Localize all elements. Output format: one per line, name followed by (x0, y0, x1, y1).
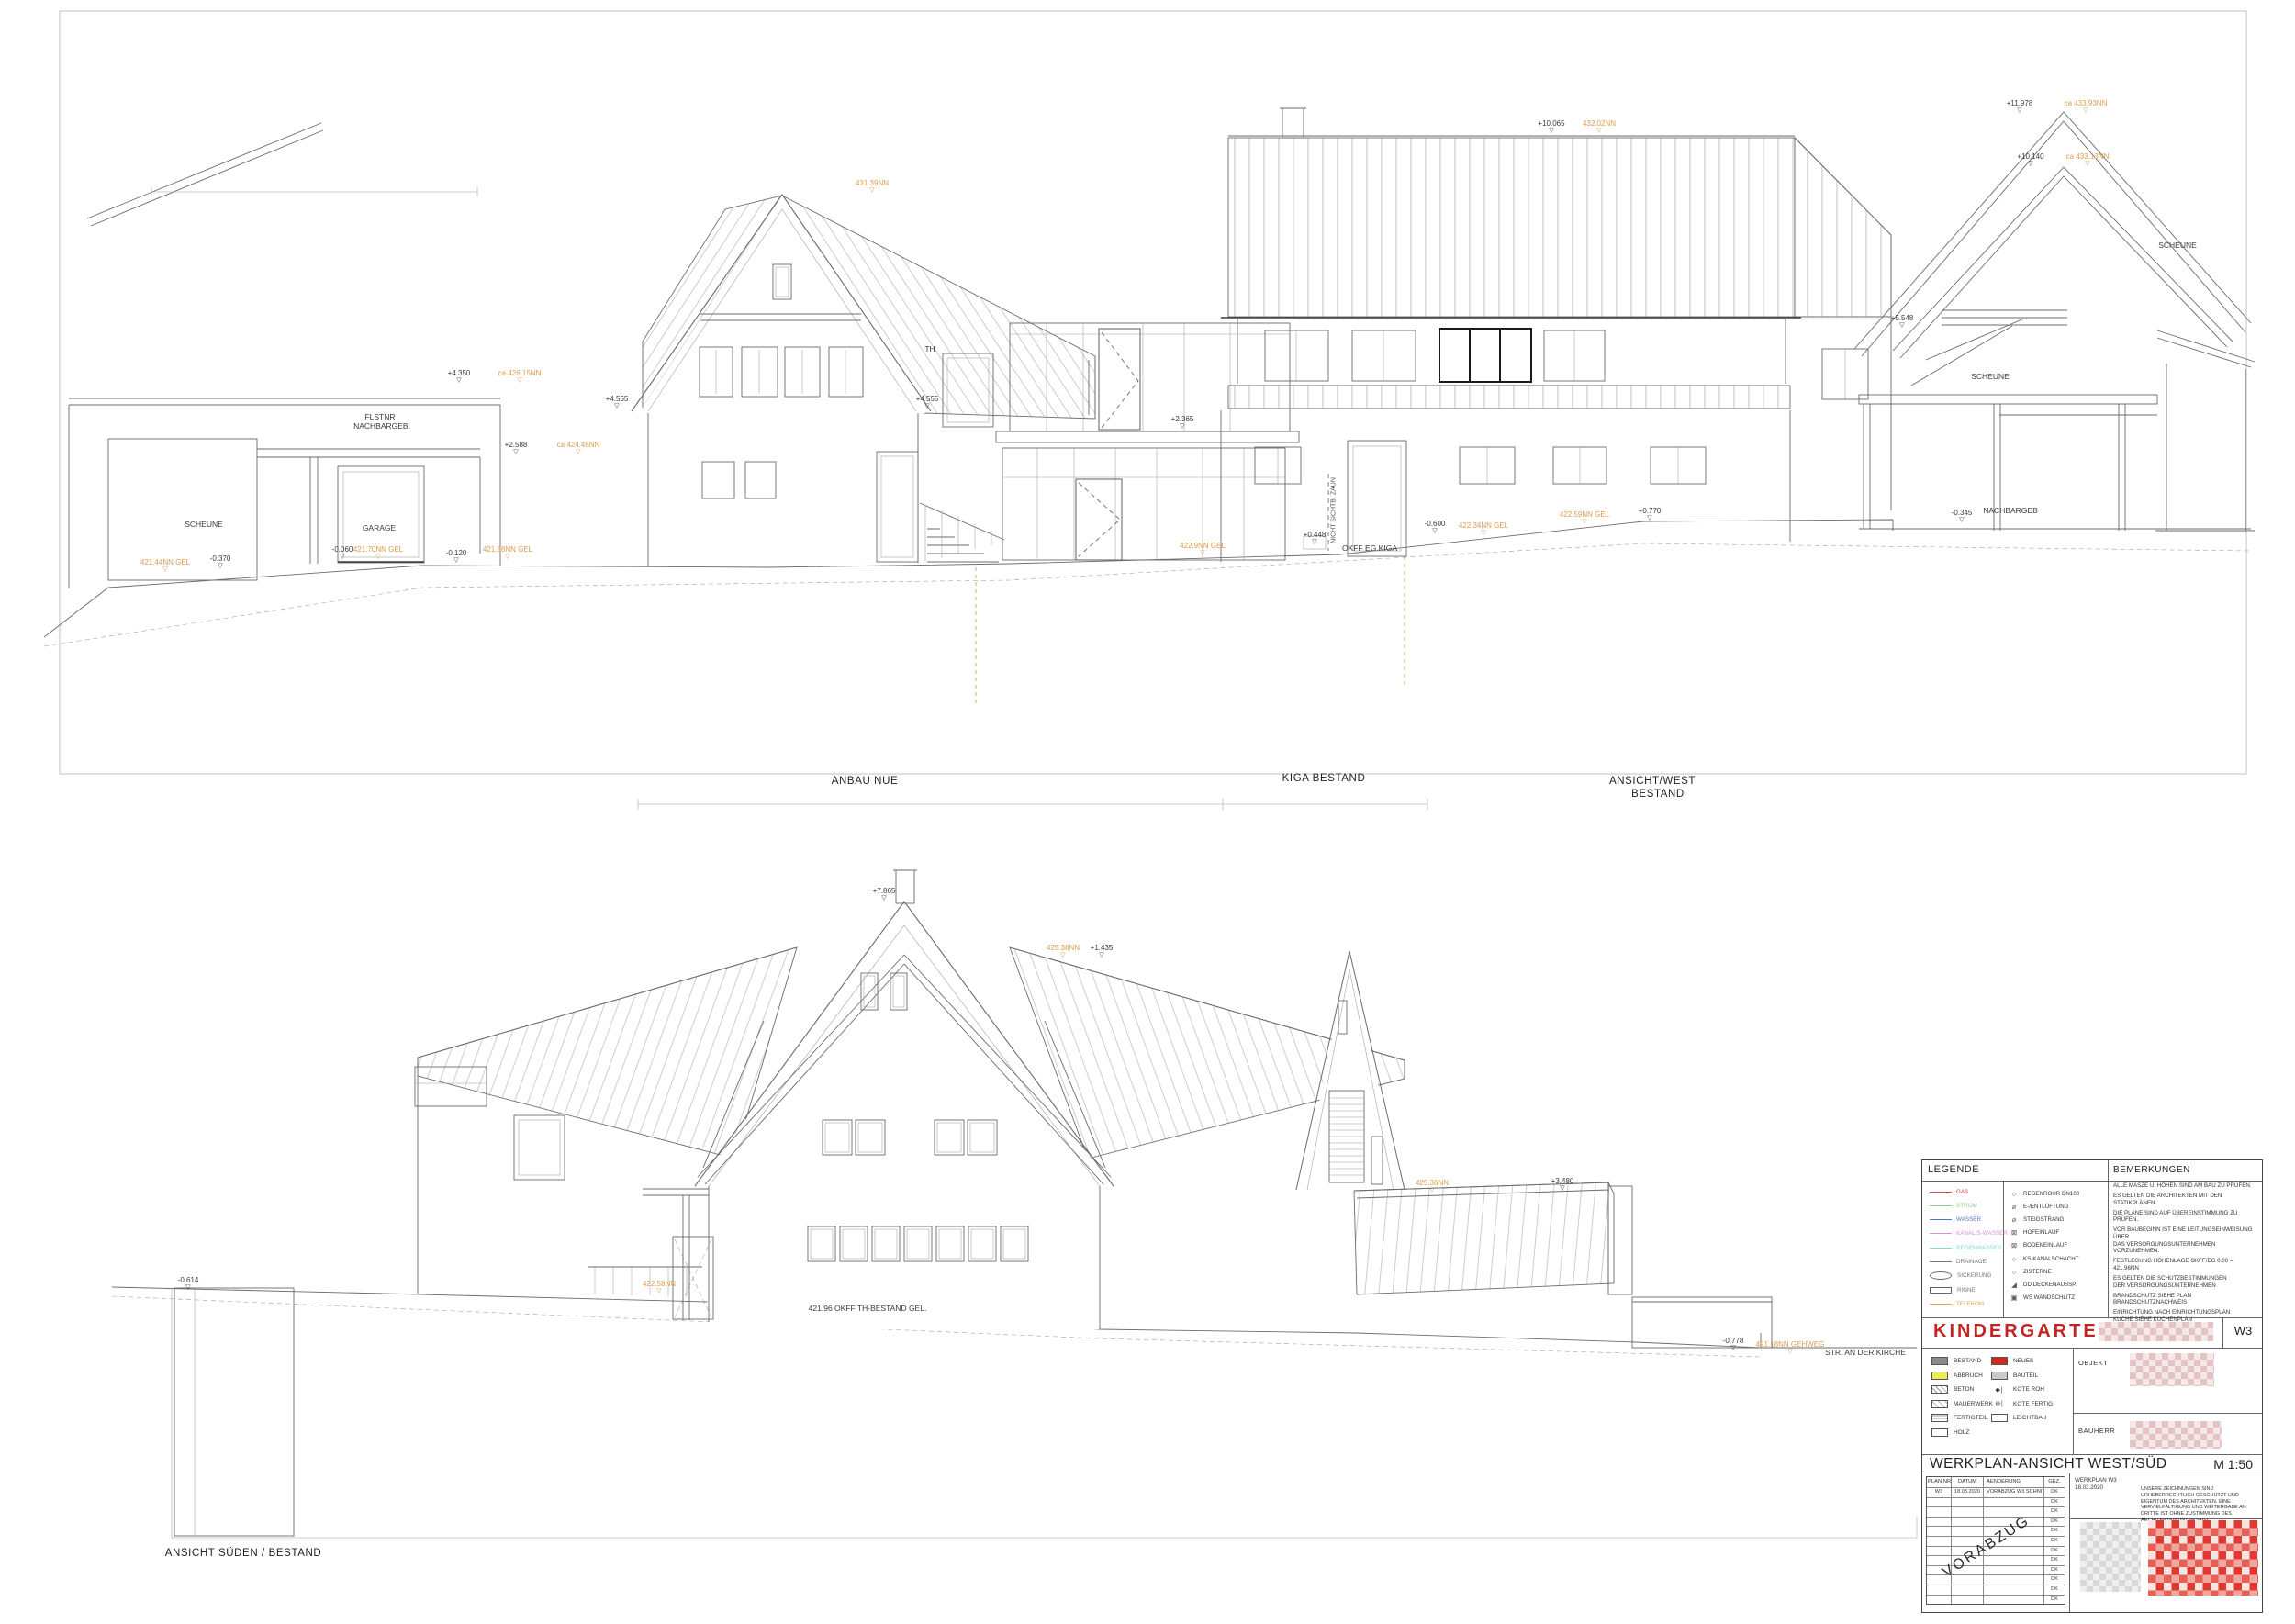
legend-swatch-icon (1930, 1219, 1952, 1220)
legend-symbol-icon: ▣ (2009, 1294, 2020, 1302)
material-label: BESTAND (1954, 1358, 1981, 1364)
plan-title: WERKPLAN-ANSICHT WEST/SÜD (1930, 1456, 2167, 1473)
remark-note: FESTLEGUNG HÖHENLAGE OKFF/EG 0.00 = 421.… (2113, 1258, 2260, 1271)
legend-swatch-icon (1930, 1287, 1952, 1294)
revision-cell (1952, 1585, 1984, 1595)
redacted-objekt (2130, 1353, 2214, 1386)
material-legend-item: BETON (1931, 1383, 1974, 1395)
legend-line-label: RINNE (1957, 1287, 1976, 1294)
legend-symbol-label: STEIGSTRANG (2023, 1216, 2064, 1223)
revision-cell: DK (2044, 1498, 2065, 1507)
revision-cell: AENDERUNG (1984, 1477, 2044, 1487)
material-legend-item: ABBRUCH (1931, 1370, 1983, 1382)
revision-cell (1927, 1585, 1952, 1595)
legend-line-item: STROM (1930, 1200, 1977, 1211)
material-label: KOTE ROH (2013, 1386, 2044, 1393)
material-swatch-icon (1931, 1372, 1948, 1380)
legend-symbol-icon: ⌀ (2009, 1215, 2020, 1224)
legend-line-label: TELEKOM (1956, 1301, 1984, 1307)
revision-cell: W3 (1927, 1488, 1952, 1497)
revision-cell (1984, 1507, 2044, 1517)
remark-note: DIE PLÄNE SIND AUF ÜBEREINSTIMMUNG ZU PR… (2113, 1210, 2260, 1224)
revision-row: DK (1927, 1497, 2065, 1507)
remark-note: BRANDSCHUTZ SIEHE PLAN BRANDSCHUTZNACHWE… (2113, 1293, 2260, 1306)
remarks-list: ALLE MASZE U. HÖHEN SIND AM BAU ZU PRÜFE… (2113, 1182, 2260, 1327)
material-label: HOLZ (1954, 1429, 1969, 1436)
revision-cell: DK (2044, 1575, 2065, 1585)
legend-symbol-item: ⌀STEIGSTRANG (2009, 1214, 2064, 1225)
revision-cell (1952, 1575, 1984, 1585)
material-label: BETON (1954, 1386, 1974, 1393)
revision-cell: DATUM (1952, 1477, 1984, 1487)
copyright-disclaimer: UNSERE ZEICHNUNGEN SIND URHEBERRECHTLICH… (2141, 1486, 2260, 1524)
legend-symbol-item: ⌀E-/ENTLÜFTUNG (2009, 1201, 2069, 1212)
revision-cell (1952, 1498, 1984, 1507)
legend-line-label: REGENWASSER (1956, 1245, 2001, 1251)
revision-cell (1927, 1527, 1952, 1536)
revision-cell: DK (2044, 1537, 2065, 1546)
material-swatch-icon: ◆∣ (1991, 1386, 2008, 1394)
revision-cell (1984, 1556, 2044, 1565)
legend-line-label: WASSER (1956, 1216, 1981, 1223)
revision-cell (1927, 1498, 1952, 1507)
revision-cell: DK (2044, 1527, 2065, 1536)
revision-cell (1952, 1596, 1984, 1605)
revision-row: DK (1927, 1595, 2065, 1605)
revision-cell: DK (2044, 1488, 2065, 1497)
legend-symbol-icon: ⊠ (2009, 1241, 2020, 1249)
revision-cell: 18.03.2020 (1952, 1488, 1984, 1497)
revision-cell: DK (2044, 1556, 2065, 1565)
remark-note: ES GELTEN DIE ARCHITEKTEN MIT DEN STATIK… (2113, 1193, 2260, 1206)
legend-symbol-label: E-/ENTLÜFTUNG (2023, 1204, 2069, 1210)
legend-symbol-label: WS WANDSCHLITZ (2023, 1294, 2075, 1301)
legend-symbol-item: ⊠BODENEINLAUF (2009, 1240, 2067, 1251)
revision-cell (1952, 1527, 1984, 1536)
legend-line-label: SICKERUNG (1957, 1272, 1991, 1279)
revision-cell (1927, 1547, 1952, 1556)
legend-symbol-item: ○ZISTERNE (2009, 1266, 2052, 1277)
material-label: ABBRUCH (1954, 1372, 1983, 1379)
legend-swatch-icon (1930, 1192, 1952, 1193)
legend-symbol-icon: ⌀ (2009, 1203, 2020, 1211)
material-swatch-icon (1991, 1414, 2008, 1422)
revision-cell (1927, 1518, 1952, 1527)
revision-cell (1984, 1585, 2044, 1595)
legend-swatch-icon (1930, 1205, 1952, 1206)
legend-symbol-item: ◢DD DECKENAUSSP. (2009, 1279, 2077, 1290)
material-legend-item: LEICHTBAU (1991, 1412, 2046, 1424)
revision-cell: GEZ. (2044, 1477, 2065, 1487)
revision-cell: DK (2044, 1566, 2065, 1575)
revision-row: DK (1927, 1517, 2065, 1527)
remark-note: ES GELTEN DIE SCHUTZBESTIMMUNGEN DER VER… (2113, 1275, 2260, 1289)
legend-title: LEGENDE (1928, 1164, 1979, 1175)
legend-line-label: DRAINAGE (1956, 1259, 1987, 1265)
objekt-label: OBJEKT (2078, 1359, 2108, 1367)
redacted-architect-logo (2080, 1522, 2141, 1592)
revision-row: W318.03.2020VORABZUG W3 SCHNITTEDK (1927, 1487, 2065, 1497)
material-label: KOTE FERTIG (2013, 1401, 2053, 1407)
legend-swatch-icon (1930, 1261, 1952, 1262)
legend-line-item: SICKERUNG (1930, 1271, 1991, 1282)
material-label: MAUERWERK (1954, 1401, 1993, 1407)
revision-cell (1952, 1507, 1984, 1517)
revision-cell (1927, 1507, 1952, 1517)
material-label: NEUES (2013, 1358, 2033, 1364)
legend-swatch-icon (1930, 1233, 1952, 1234)
material-legend-item: BAUTEIL (1991, 1370, 2038, 1382)
sheet-code: W3 (2222, 1324, 2264, 1338)
material-swatch-icon (1931, 1400, 1948, 1408)
legend-line-label: KANAL/S-WASSER (1956, 1230, 2008, 1237)
material-legend-item: FERTIGTEIL (1931, 1412, 1987, 1424)
revision-cell: DK (2044, 1518, 2065, 1527)
legend-symbol-icon: ⊠ (2009, 1228, 2020, 1237)
legend-symbol-label: KS-KANALSCHACHT (2023, 1256, 2079, 1262)
material-legend-item: BESTAND (1931, 1355, 1981, 1367)
material-legend-item: HOLZ (1931, 1427, 1969, 1439)
revision-cell (1952, 1518, 1984, 1527)
revision-cell (1927, 1537, 1952, 1546)
legend-symbol-icon: ○ (2009, 1268, 2020, 1276)
material-swatch-icon (1991, 1372, 2008, 1380)
material-legend-item: MAUERWERK (1931, 1398, 1993, 1410)
revision-cell (1984, 1575, 2044, 1585)
top-view-frame (60, 11, 2246, 774)
material-swatch-icon (1931, 1428, 1948, 1437)
revision-cell (1984, 1498, 2044, 1507)
material-label: LEICHTBAU (2013, 1415, 2046, 1421)
redacted-office-logo (2148, 1520, 2258, 1596)
plan-scale: M 1:50 (2213, 1457, 2253, 1472)
legend-line-item: DRAINAGE (1930, 1257, 1987, 1268)
legend-line-item: WASSER (1930, 1215, 1981, 1226)
legend-swatch-icon (1930, 1271, 1952, 1280)
revision-cell (1984, 1596, 2044, 1605)
legend-line-item: RINNE (1930, 1284, 1976, 1295)
bauherr-label: BAUHERR (2078, 1427, 2115, 1435)
remark-note: ALLE MASZE U. HÖHEN SIND AM BAU ZU PRÜFE… (2113, 1182, 2260, 1190)
legend-line-item: REGENWASSER (1930, 1242, 2001, 1253)
legend-symbol-label: REGENROHR DN100 (2023, 1191, 2079, 1197)
legend-symbol-item: ▣WS WANDSCHLITZ (2009, 1293, 2075, 1304)
revision-row: DK (1927, 1585, 2065, 1595)
legend-symbol-label: DD DECKENAUSSP. (2023, 1282, 2077, 1288)
legend-symbol-icon: ○ (2009, 1255, 2020, 1263)
legend-symbol-item: ○REGENROHR DN100 (2009, 1188, 2079, 1199)
revision-cell: DK (2044, 1547, 2065, 1556)
revision-row: DK (1927, 1506, 2065, 1517)
material-legend-item: ⊕∣KOTE FERTIG (1991, 1398, 2053, 1410)
legend-swatch-icon (1930, 1248, 1952, 1249)
revision-cell (1927, 1596, 1952, 1605)
legend-symbol-item: ⊠HOFEINLAUF (2009, 1227, 2059, 1238)
material-swatch-icon (1991, 1357, 2008, 1365)
legend-swatch-icon (1930, 1304, 1952, 1305)
legend-line-label: STROM (1956, 1203, 1977, 1209)
legend-symbol-label: ZISTERNE (2023, 1269, 2052, 1275)
legend-line-label: GAS (1956, 1189, 1968, 1195)
legend-line-item: TELEKOM (1930, 1298, 1984, 1309)
material-swatch-icon (1931, 1414, 1948, 1422)
material-swatch-icon (1931, 1385, 1948, 1394)
revision-cell: VORABZUG W3 SCHNITTE (1984, 1488, 2044, 1497)
material-swatch-icon (1931, 1357, 1948, 1365)
remarks-title: BEMERKUNGEN (2113, 1165, 2190, 1175)
remark-note: VOR BAUBEGINN IST EINE LEITUNGSEINWEISUN… (2113, 1226, 2260, 1254)
revision-header-row: PLAN NRDATUMAENDERUNGGEZ. (1927, 1477, 2065, 1487)
revision-cell: DK (2044, 1596, 2065, 1605)
revision-cell: PLAN NR (1927, 1477, 1952, 1487)
material-swatch-icon: ⊕∣ (1991, 1400, 2008, 1407)
material-legend-item: NEUES (1991, 1355, 2033, 1367)
material-label: FERTIGTEIL (1954, 1415, 1987, 1421)
redacted-project-name (2099, 1322, 2213, 1341)
werkplan-info: WERKPLAN W3 18.03.2020 (2075, 1477, 2117, 1492)
legend-symbol-label: HOFEINLAUF (2023, 1229, 2059, 1236)
legend-line-item: KANAL/S-WASSER (1930, 1228, 2008, 1239)
legend-symbol-icon: ◢ (2009, 1281, 2020, 1289)
legend-symbol-label: BODENEINLAUF (2023, 1242, 2067, 1249)
redacted-bauherr (2130, 1421, 2222, 1449)
plan-sheet: -0.370▽421.44NN GEL▽-0.060▽421.70NN GEL▽… (0, 0, 2295, 1624)
legend-line-item: GAS (1930, 1186, 1968, 1197)
revision-cell: DK (2044, 1585, 2065, 1595)
material-legend-item: ◆∣KOTE ROH (1991, 1383, 2044, 1395)
legend-symbol-icon: ○ (2009, 1190, 2020, 1198)
revision-cell (1984, 1566, 2044, 1575)
material-label: BAUTEIL (2013, 1372, 2038, 1379)
legend-symbol-item: ○KS-KANALSCHACHT (2009, 1253, 2079, 1264)
project-title: KINDERGARTEN (1933, 1321, 2114, 1342)
revision-cell: DK (2044, 1507, 2065, 1517)
